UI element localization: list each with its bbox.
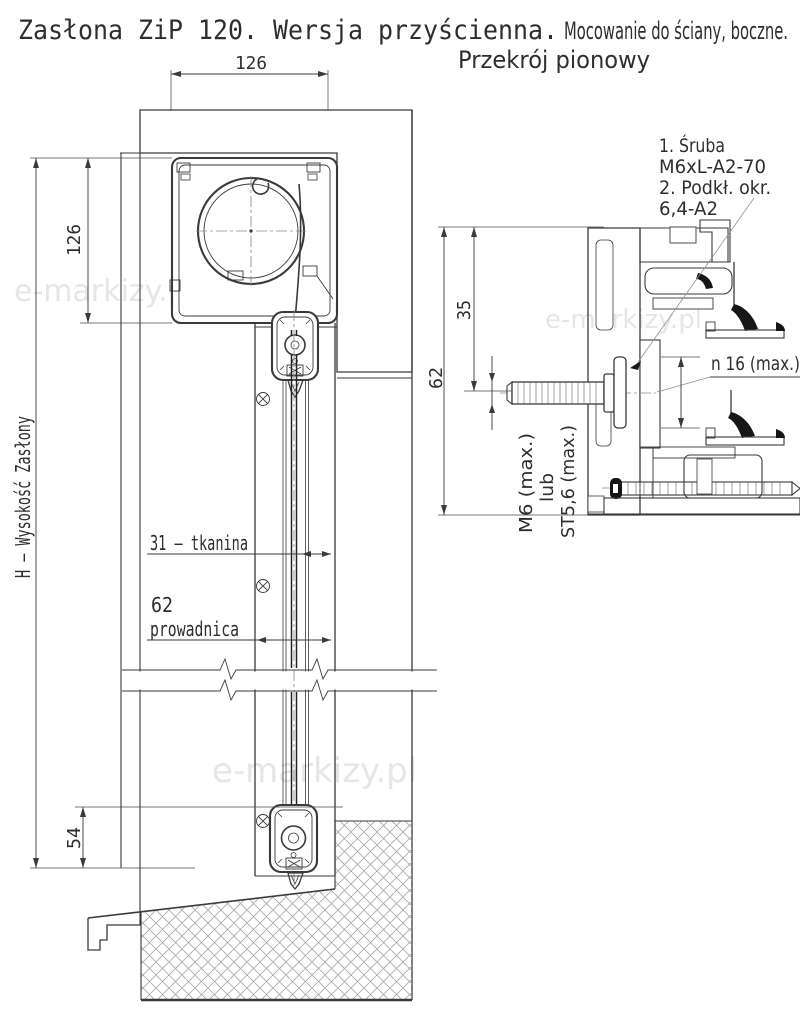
note-screw-1: 1. Śruba	[659, 133, 725, 157]
watermark-top-left: e-markizy.pl	[14, 274, 195, 309]
dim-detail-axis-offset: 35	[454, 300, 475, 320]
subtitle-section-type: Przekrój pionowy	[458, 46, 650, 74]
bracket-face-plate	[640, 340, 660, 448]
detail-annotations: 1. Śruba M6xL-A2-70 2. Podkł. okr. 6,4-A…	[516, 133, 800, 538]
bottom-zip-wedge	[288, 873, 303, 889]
dim-detail-depth: 62	[426, 367, 447, 389]
note-washer-diameter: n 16 (max.)	[711, 353, 800, 375]
title-block: Zasłona ZiP 120. Wersja przyścienna. Moc…	[18, 15, 788, 74]
technical-drawing: e-markizy.pl e-markizy.pl e-markizy.pl Z…	[0, 0, 800, 1019]
bracket-top-hook	[700, 220, 730, 262]
dim-guide-value: 62	[151, 593, 173, 617]
fabric-entry-guide	[272, 312, 318, 397]
cassette	[170, 158, 337, 330]
watermarks: e-markizy.pl e-markizy.pl e-markizy.pl	[14, 274, 702, 791]
cassette-side-flange-bottom	[706, 390, 785, 445]
main-section-view: 126 126 H – Wysokość Zasłony 54 31 – tka…	[11, 53, 437, 1000]
diameter-leader-line	[657, 377, 710, 392]
note-thread-3: ST5,6 (max.)	[558, 425, 579, 538]
dim-cassette-height: 126	[64, 224, 85, 256]
note-washer-2: 6,4-A2	[659, 198, 718, 220]
title-main: Zasłona ZiP 120. Wersja przyścienna.	[18, 15, 558, 46]
dim-bottom-offset: 54	[64, 827, 85, 849]
screw-head	[604, 374, 614, 412]
seal-wing-bottom	[728, 412, 755, 438]
detail-section-view: 62 35 1. Śruba M6xL-A2-70 2. Podkł. okr.…	[426, 133, 800, 538]
watermark-detail: e-markizy.pl	[545, 305, 702, 335]
note-thread-2: lub	[537, 473, 558, 502]
dim-fabric-label: 31 – tkanina	[150, 531, 248, 555]
guide-channel	[255, 323, 335, 876]
break-mask	[124, 672, 436, 690]
cassette-side-flange-top	[706, 262, 785, 338]
dim-guide-name: prowadnica	[150, 617, 239, 641]
entry-zip-wedge	[288, 380, 303, 397]
drip-edge-profile	[88, 918, 141, 950]
drawing-sheet: e-markizy.pl e-markizy.pl e-markizy.pl Z…	[0, 0, 800, 1019]
base-plate	[604, 498, 800, 514]
note-washer-1: 2. Podkł. okr.	[659, 177, 771, 199]
dim-total-height: H – Wysokość Zasłony	[11, 416, 35, 578]
watermark-bottom: e-markizy.pl	[212, 751, 417, 791]
round-washer	[614, 357, 626, 428]
note-screw-2: M6xL-A2-70	[659, 156, 766, 178]
title-mounting: Mocowanie do ściany, boczne.	[564, 17, 788, 45]
seal-wing-top	[731, 304, 758, 331]
washer-leader-line	[636, 198, 754, 365]
dim-top-width: 126	[235, 53, 267, 74]
note-thread-1: M6 (max.)	[516, 433, 537, 533]
